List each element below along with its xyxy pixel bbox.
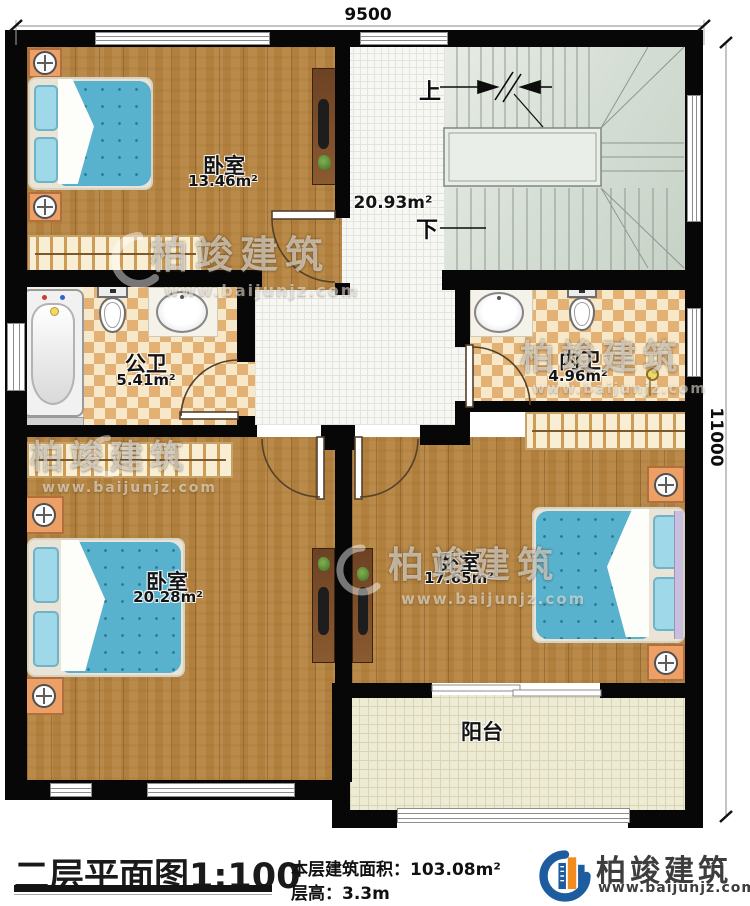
room-label: 阳台 bbox=[461, 716, 503, 746]
stairs-up-label: 上 bbox=[419, 74, 441, 106]
dimension-right: 11000 bbox=[706, 387, 726, 487]
brand-url: www.baijunjz.com bbox=[598, 880, 750, 896]
title-underline bbox=[14, 885, 272, 892]
room-area: 20.28m² bbox=[133, 588, 203, 606]
watermark: 柏竣建筑 www.baijunjz.com bbox=[150, 224, 359, 300]
floor-plan: 卧室 13.46m² 20.93m² 上 下 公卫 5.41m² 内卫 4.96… bbox=[0, 0, 750, 906]
title-underline-thin bbox=[14, 894, 272, 895]
room-area: 13.46m² bbox=[188, 172, 258, 190]
sliding-door bbox=[432, 685, 601, 696]
dimension-top: 9500 bbox=[344, 5, 391, 25]
dimension-lines bbox=[10, 20, 732, 822]
floor-area-line: 本层建筑面积：103.08m² bbox=[291, 855, 501, 880]
stairs-down-label: 下 bbox=[416, 212, 438, 244]
stair-landing bbox=[444, 128, 601, 186]
watermark: 柏竣建筑 www.baijunjz.com bbox=[520, 330, 707, 397]
title-block: 二层平面图1:100 本层建筑面积：103.08m² 层高：3.3m 柏竣建筑 … bbox=[0, 846, 750, 906]
watermark: 柏竣建筑 www.baijunjz.com bbox=[30, 430, 217, 496]
room-area: 20.93m² bbox=[354, 193, 433, 213]
brand-logo-icon bbox=[537, 848, 593, 904]
room-area: 5.41m² bbox=[116, 371, 175, 389]
floor-height-line: 层高：3.3m bbox=[291, 879, 390, 904]
watermark: 柏竣建筑 www.baijunjz.com bbox=[388, 536, 586, 608]
